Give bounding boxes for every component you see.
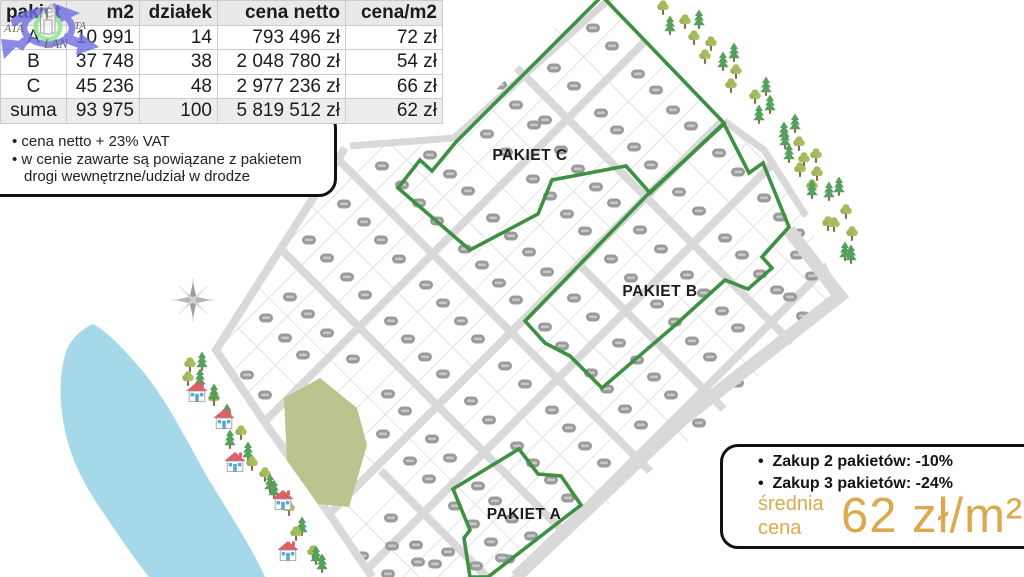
svg-text:PAKIET A: PAKIET A bbox=[487, 506, 562, 523]
svg-text:PAKIET B: PAKIET B bbox=[622, 283, 697, 300]
svg-text:TA: TA bbox=[74, 20, 86, 32]
svg-text:ATA: ATA bbox=[3, 21, 25, 35]
svg-text:LAN: LAN bbox=[43, 36, 69, 51]
svg-text:PAKIET C: PAKIET C bbox=[492, 147, 567, 164]
